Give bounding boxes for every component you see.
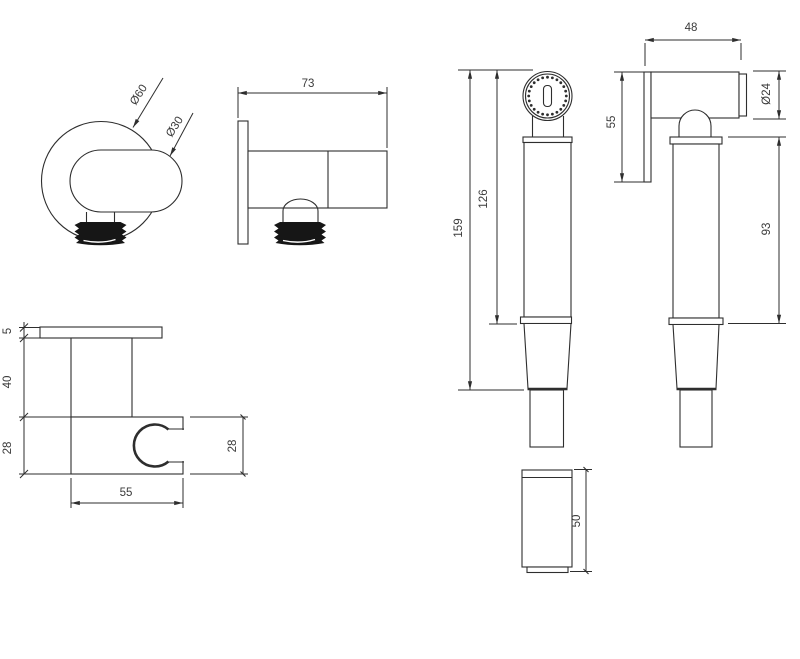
dim-label-coupling-height: 50: [571, 515, 583, 528]
outlet-front-view: Ø60 Ø30: [42, 78, 194, 245]
dimension-length-126: 126: [478, 70, 517, 324]
handle-ring: [521, 317, 572, 324]
threaded-connector: [274, 222, 326, 245]
coupling-base: [527, 567, 568, 573]
hose-coupling-view: 50: [522, 470, 592, 573]
handle-body: [524, 143, 571, 318]
nozzle-dot: [546, 76, 549, 79]
dimension-head-length-48: 48: [645, 22, 741, 66]
dim-label-body-depth: 28: [227, 440, 239, 453]
dim-label-face-height: 55: [606, 116, 618, 129]
sprayer-front-view: 159 126: [453, 70, 572, 447]
wall-plate: [238, 121, 248, 244]
dimension-stack-left: 5 40 28: [2, 322, 71, 478]
nozzle-dot: [533, 81, 536, 84]
handle-cone: [673, 325, 719, 389]
handle-body: [673, 144, 719, 318]
handle-flange: [523, 137, 572, 143]
notch-gap: [182, 430, 186, 461]
dimension-handle-length-93: 93: [728, 137, 786, 324]
nozzle-dot: [551, 113, 554, 116]
nozzle-dot: [565, 95, 568, 98]
dimension-depth-73: 73: [238, 78, 387, 148]
holder-plate: [40, 327, 162, 338]
nozzle-dot: [551, 76, 554, 79]
nozzle-dot: [528, 99, 531, 102]
dim-label-length-to-cone: 126: [478, 189, 490, 208]
nozzle-dot: [533, 108, 536, 111]
nozzle-dot: [556, 78, 559, 81]
dim-label-body-height: 28: [2, 442, 14, 455]
nozzle-dot: [537, 111, 540, 114]
handle-ring: [669, 318, 723, 325]
inlet-tube: [680, 390, 712, 447]
outlet-body-capsule: [70, 150, 182, 212]
nozzle-dot: [530, 104, 533, 107]
dimension-body-depth-right: 28: [190, 417, 248, 474]
dim-label-handle-length: 93: [761, 223, 773, 236]
dim-label-body-width: 55: [120, 487, 133, 499]
dim-label-depth: 73: [302, 78, 315, 90]
nozzle-dot: [546, 113, 549, 116]
handle-flange: [670, 137, 722, 144]
nozzle-dot: [562, 85, 565, 88]
nozzle-dot: [556, 111, 559, 114]
nozzle-dot: [559, 108, 562, 111]
dim-label-plate-thickness: 5: [2, 328, 14, 334]
technical-drawing: Ø60 Ø30 73: [0, 0, 800, 659]
spray-face-plate-edge: [644, 72, 651, 182]
nozzle-dot: [562, 104, 565, 107]
dim-label-head-length: 48: [685, 22, 698, 34]
nozzle-dot: [564, 99, 567, 102]
dimension-face-height-55: 55: [606, 72, 648, 182]
nozzle-dot: [564, 90, 567, 93]
holder-body: [71, 417, 183, 474]
coupling-body: [522, 470, 572, 567]
outlet-body: [248, 151, 387, 208]
sprayer-side-view: 48 55 Ø24 93: [606, 22, 786, 447]
dimension-outer-diameter: Ø60: [128, 78, 163, 128]
outlet-side-view: 73: [238, 78, 387, 245]
dim-label-body-diameter: Ø30: [164, 115, 186, 140]
holder-stem: [71, 338, 132, 417]
head-dome-joint: [679, 110, 711, 137]
spray-face-slot: [544, 86, 552, 107]
holder-view: 5 40 28 28 55: [2, 322, 248, 508]
dimension-coupling-height-50: 50: [570, 470, 592, 572]
drawing-canvas: Ø60 Ø30 73: [0, 0, 800, 659]
nozzle-dot: [541, 113, 544, 116]
dimension-body-width-bottom: 55: [71, 478, 183, 508]
nozzle-dot: [527, 95, 530, 98]
nozzle-dot: [541, 76, 544, 79]
threaded-connector: [75, 222, 127, 245]
handle-cone: [524, 324, 571, 389]
nozzle-dot: [537, 78, 540, 81]
dim-label-outer-diameter: Ø60: [128, 83, 150, 108]
dimension-body-diameter: Ø30: [164, 113, 193, 156]
dim-label-total-length: 159: [453, 218, 465, 237]
nozzle-dot: [528, 90, 531, 93]
nozzle-dot: [559, 81, 562, 84]
inlet-tube: [530, 390, 564, 447]
dimension-total-length-159: 159: [453, 70, 524, 390]
head-end-cap: [739, 74, 747, 116]
dim-label-cap-diameter: Ø24: [761, 83, 773, 105]
nozzle-dot: [530, 85, 533, 88]
dim-label-stem-height: 40: [2, 376, 14, 389]
dimension-cap-diameter-24: Ø24: [753, 71, 786, 119]
